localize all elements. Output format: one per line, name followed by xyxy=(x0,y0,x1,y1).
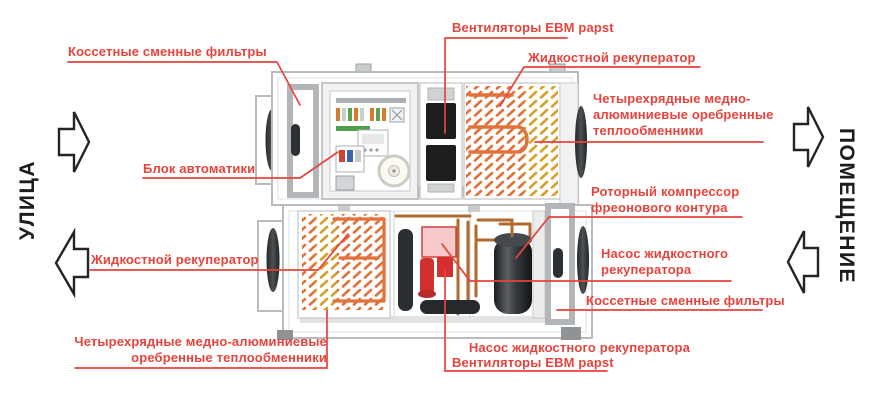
label-line: Четырехрядные медно-алюминиевые xyxy=(50,334,327,350)
label-pump-right: Насос жидкостного рекуператора xyxy=(601,246,728,278)
wiring-sticker xyxy=(390,108,404,122)
street-side-label: УЛИЦА xyxy=(16,140,40,260)
coil-fins-orange xyxy=(337,214,386,310)
label-fans-bottom: Вентиляторы EBM papst xyxy=(452,355,614,371)
label-line: алюминиевые оребренные xyxy=(593,107,774,123)
coil-fins-yellow xyxy=(524,86,558,196)
arrow-room-supply-icon xyxy=(794,107,823,167)
label-line: оребренные теплообменники xyxy=(50,350,327,366)
panel-fan-icon xyxy=(379,156,409,186)
coil-fins-orange xyxy=(466,86,524,196)
fan-block-top xyxy=(420,83,462,199)
label-pump-bottom: Насос жидкостного рекуператора xyxy=(420,340,690,356)
label-fans-top: Вентиляторы EBM papst xyxy=(452,20,614,36)
cassette-filter-bottom xyxy=(545,203,575,325)
heat-exchanger-coil-bottom xyxy=(298,211,390,318)
label-liquid-recuperator-bottom: Жидкостной рекуператор xyxy=(91,252,259,268)
ahu-unit xyxy=(256,64,592,340)
muffler-icon xyxy=(420,300,480,314)
label-line: Роторный компрессор xyxy=(591,184,739,200)
label-rotary-compressor: Роторный компрессор фреонового контура xyxy=(591,184,739,216)
automation-box xyxy=(322,83,418,199)
label-heat-exchangers-bottom: Четырехрядные медно-алюминиевые оребренн… xyxy=(50,334,327,366)
arrow-street-inlet-icon xyxy=(59,112,89,172)
label-filters-top: Коссетные сменные фильтры xyxy=(68,44,267,60)
room-side-label: ПОМЕЩЕНИЕ xyxy=(834,116,858,296)
supply-section xyxy=(256,64,587,205)
coil-fins-yellow xyxy=(315,214,337,310)
din-rail xyxy=(336,98,406,103)
arrow-room-return-icon xyxy=(788,231,818,293)
label-line: фреонового контура xyxy=(591,200,739,216)
filter-handle-icon xyxy=(291,124,300,156)
label-line: теплообменники xyxy=(593,123,774,139)
unit-foot xyxy=(561,327,581,340)
ec-fan-icon xyxy=(426,145,456,181)
heat-exchanger-coil-top xyxy=(464,83,560,199)
terminal-blocks xyxy=(336,108,386,121)
inner-wall xyxy=(533,211,545,318)
label-line: Насос жидкостного xyxy=(601,246,728,262)
label-automation: Блок автоматики xyxy=(143,161,255,177)
label-line: Четырехрядные медно- xyxy=(593,91,774,107)
coil-fins-orange xyxy=(302,214,315,310)
exhaust-fan-icon xyxy=(398,229,413,311)
expansion-vessel xyxy=(420,258,434,294)
cassette-filter-top xyxy=(287,84,319,198)
label-heat-exchangers-right: Четырехрядные медно- алюминиевые оребрен… xyxy=(593,91,774,139)
filter-handle-icon xyxy=(553,248,563,278)
arrow-street-outlet-icon xyxy=(56,232,88,294)
label-liquid-recuperator-top: Жидкостной рекуператор xyxy=(528,50,696,66)
exhaust-section xyxy=(258,203,592,340)
relay-module xyxy=(336,176,354,190)
fan-impeller-icon xyxy=(267,228,280,292)
label-line: рекуператора xyxy=(601,262,728,278)
ec-fan-icon xyxy=(426,103,456,139)
ahu-infographic: Коссетные сменные фильтры Вентиляторы EB… xyxy=(0,0,884,400)
circuit-breakers xyxy=(336,146,364,172)
label-filters-bottom: Коссетные сменные фильтры xyxy=(586,293,785,309)
fan-impeller-icon xyxy=(577,226,589,294)
